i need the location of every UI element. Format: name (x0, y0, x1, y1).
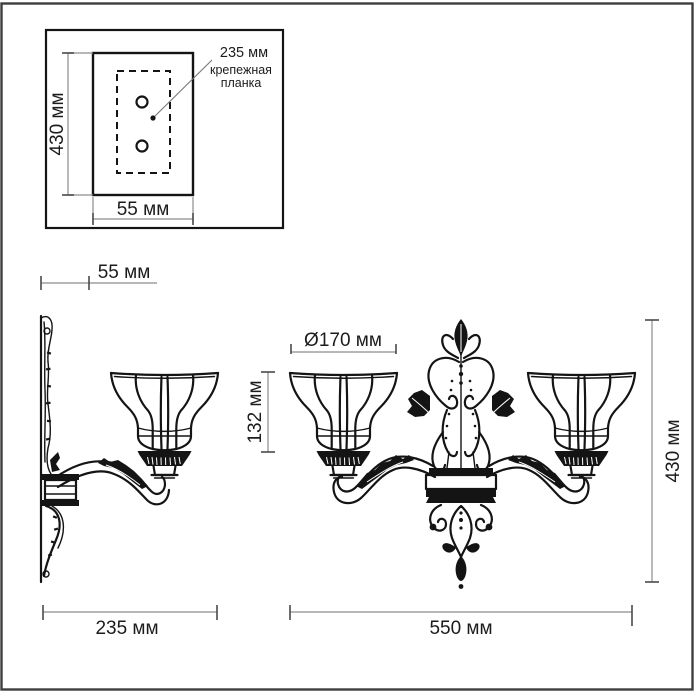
side-view-shade (111, 373, 218, 478)
ornament-pendant (430, 505, 493, 589)
center-ornament (407, 319, 515, 589)
callout-value: 235 мм (220, 45, 268, 61)
inset-width-label: 55 мм (117, 199, 170, 220)
side-view-backplate (41, 316, 60, 582)
dimension-side-depth: 235 мм (43, 605, 217, 639)
wall-depth-label: 55 мм (98, 262, 151, 283)
inset-height-label: 430 мм (47, 92, 68, 155)
side-depth-label: 235 мм (95, 618, 158, 639)
dimension-shade-diameter: Ø170 мм (291, 330, 396, 354)
dimension-shade-height: 132 мм (245, 372, 275, 452)
mounting-plate-diagram: 235 мм крепежная планка 430 мм 55 мм (46, 30, 283, 228)
ornament-base-block (426, 468, 496, 503)
callout-label-line1: крепежная (210, 63, 272, 77)
dimension-wall-depth: 55 мм (41, 262, 157, 290)
sconce-front-view (290, 319, 635, 589)
dimension-fixture-width: 550 мм (290, 605, 632, 639)
sconce-dimension-diagram: 235 мм крепежная планка 430 мм 55 мм (0, 0, 700, 700)
callout-label-line2: планка (221, 76, 262, 90)
right-shade (528, 373, 635, 478)
sconce-side-view (41, 316, 218, 582)
dimension-fixture-height: 430 мм (645, 320, 684, 582)
side-view-wall-bracket (42, 474, 79, 577)
shade-diameter-label: Ø170 мм (304, 330, 382, 351)
fixture-height-label: 430 мм (663, 419, 684, 482)
fixture-width-label: 550 мм (429, 618, 492, 639)
callout-leader-dot (150, 115, 155, 120)
shade-height-label: 132 мм (245, 380, 266, 443)
